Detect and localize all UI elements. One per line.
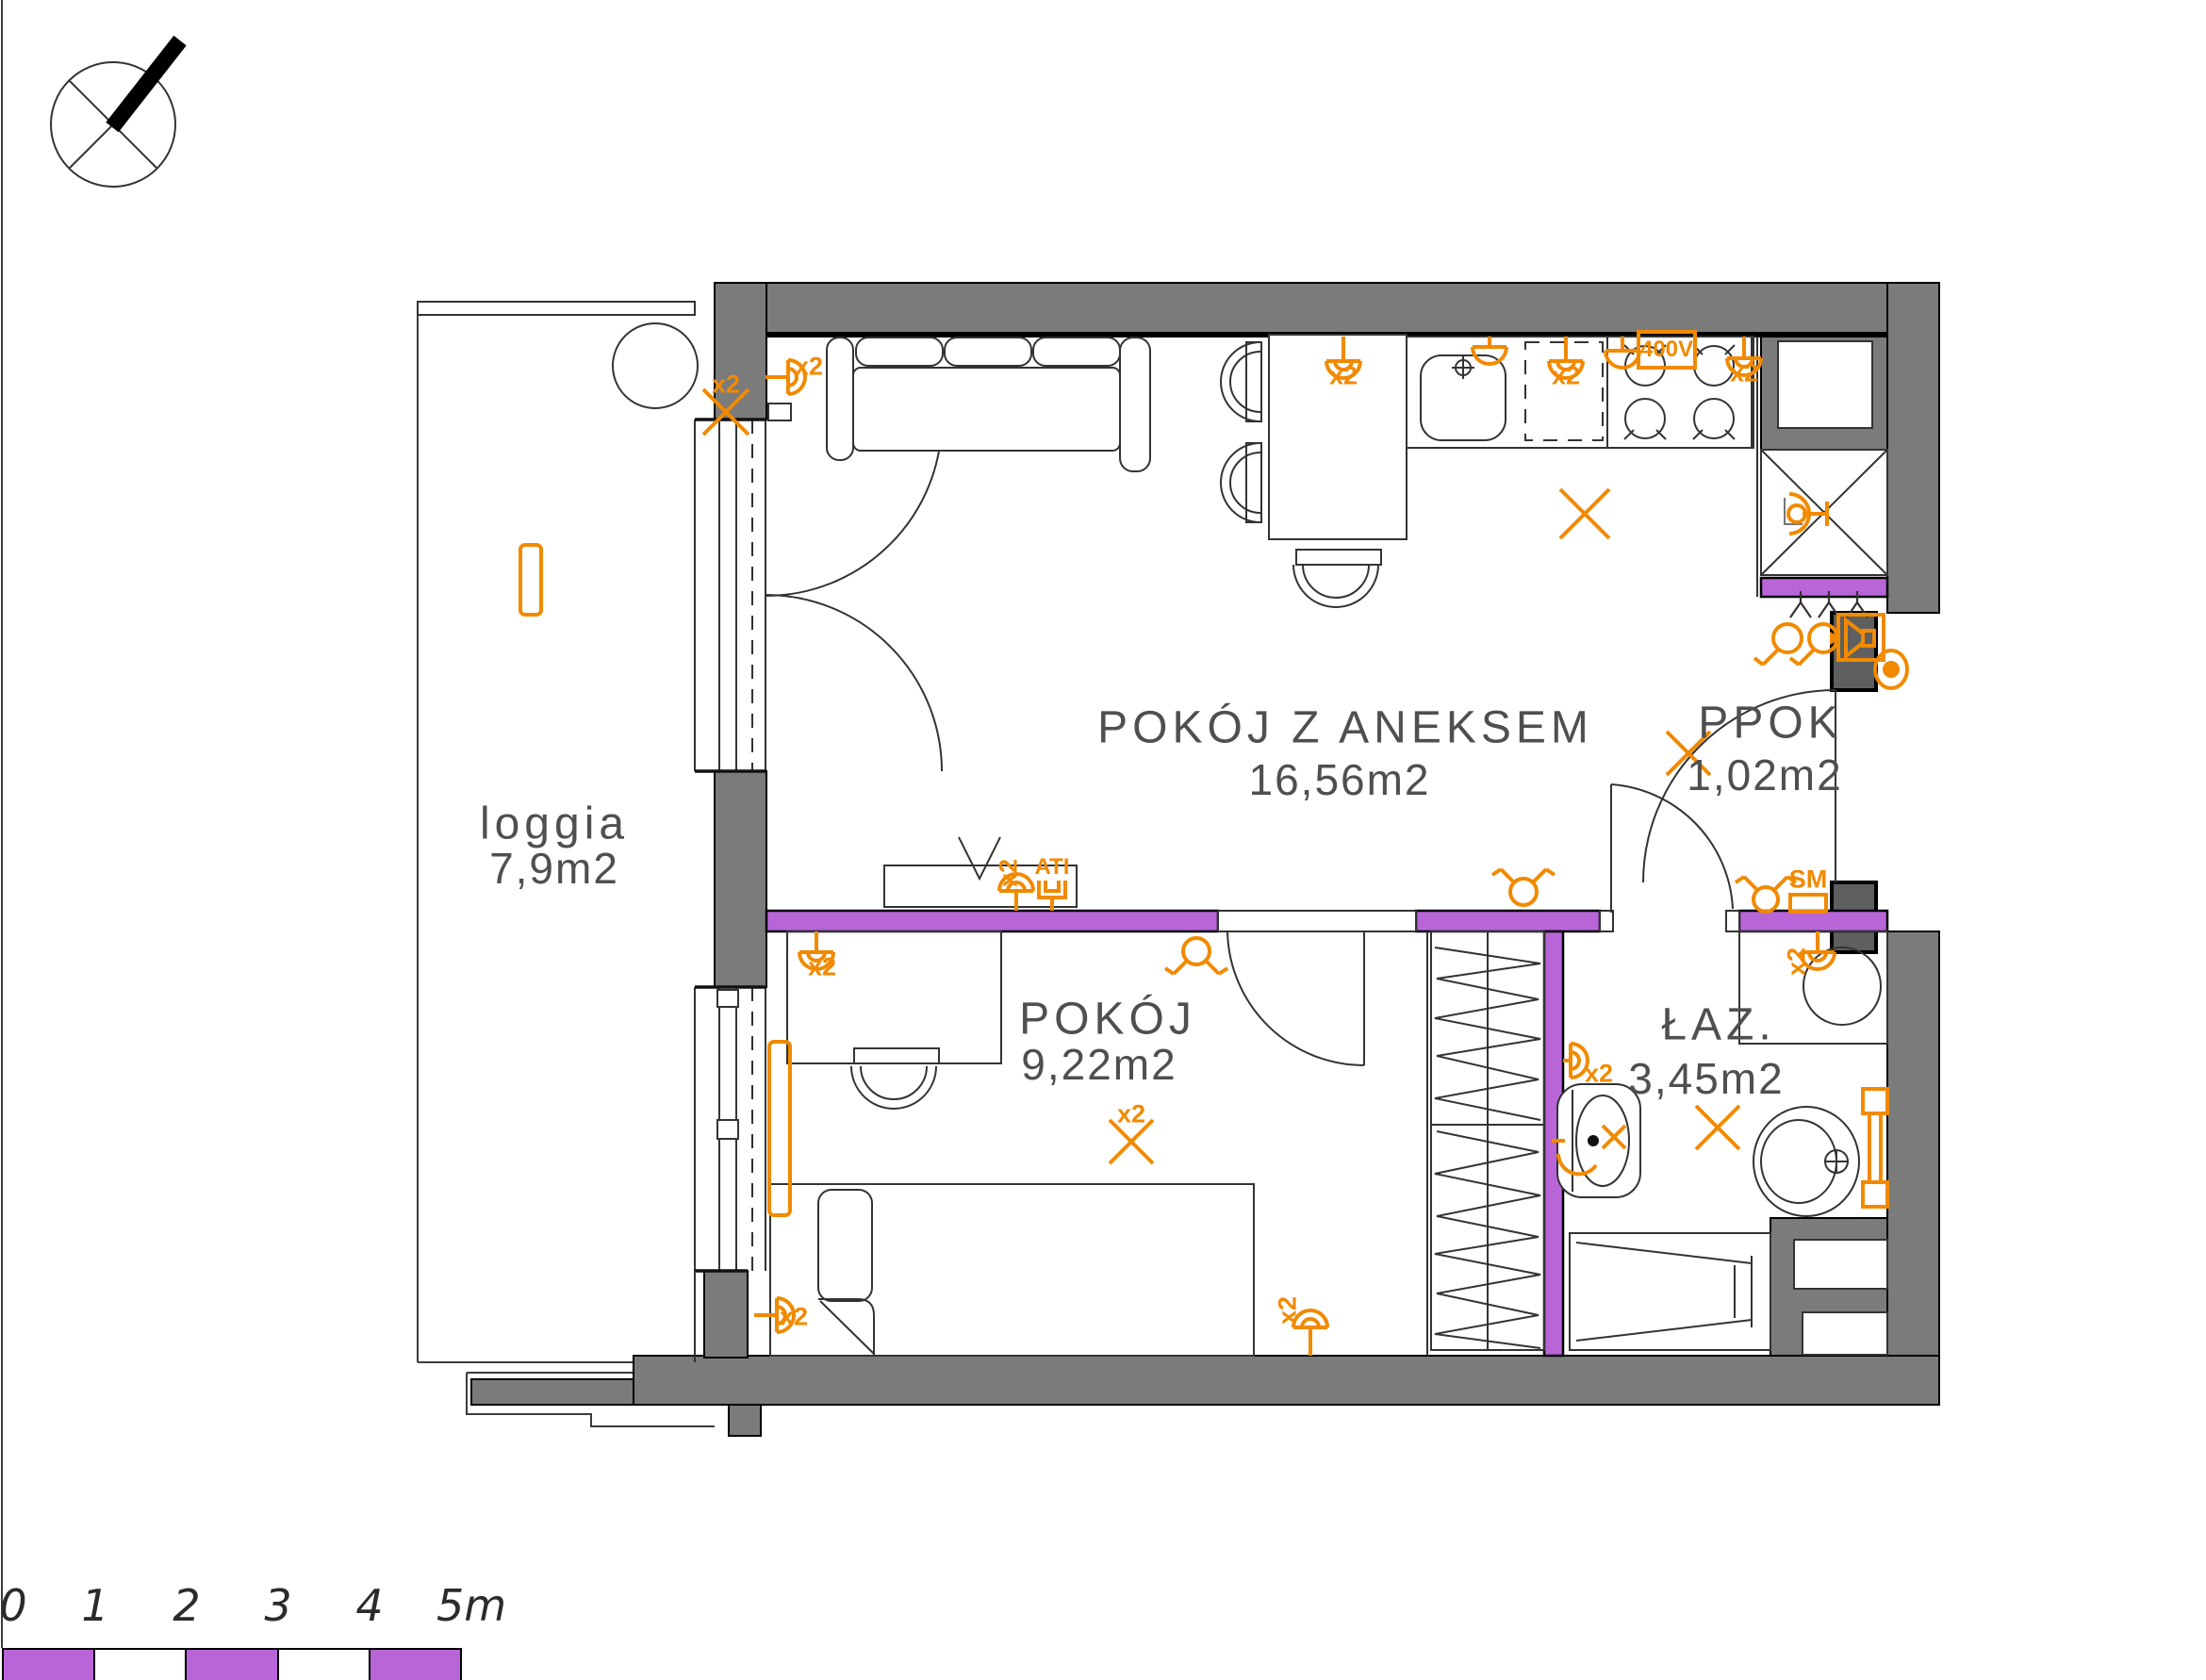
balcony-door-swing (766, 420, 942, 771)
power-400v-label: 400V (1640, 337, 1693, 363)
switch (768, 404, 791, 420)
pokoj-name: POKÓJ (1019, 994, 1196, 1046)
plan-drawing (0, 0, 2206, 1680)
kitchen-counter (1407, 337, 1753, 448)
wall-bottom-left (471, 1379, 634, 1405)
x2-label: x2 (1274, 1296, 1303, 1325)
x2-label: x2 (1552, 362, 1580, 391)
pillar-bottom-left (704, 1271, 748, 1358)
desk-chair (851, 1048, 939, 1109)
x2-label: x2 (780, 1303, 808, 1332)
pillar-mid-left (715, 771, 766, 987)
x2-label: x2 (1783, 947, 1812, 976)
chair (1221, 443, 1261, 522)
doorbell (1875, 651, 1907, 688)
niche-lower (1803, 1312, 1887, 1355)
scale-1: 1 (81, 1580, 108, 1631)
x2-label: x2 (1329, 362, 1358, 391)
ppok-name: PPOK (1698, 698, 1842, 749)
sm-label: SM (1789, 865, 1828, 895)
x2-label: x2 (1585, 1060, 1613, 1089)
furniture-living (613, 323, 1753, 907)
x2-label: x2 (1730, 359, 1758, 388)
sofa (827, 338, 1150, 471)
x2-label: x2 (795, 353, 823, 382)
chair (1293, 550, 1381, 607)
lamp-hall (1492, 869, 1555, 905)
scale-bar-segment (279, 1650, 370, 1680)
radiator-loggia (520, 545, 541, 615)
shaft-opening (1778, 341, 1872, 428)
socket-kitchen-4 (1605, 337, 1639, 368)
toilet (1753, 1107, 1859, 1216)
towel-radiator (1863, 1089, 1887, 1207)
partitions (1427, 337, 1757, 1356)
laz-name: ŁAZ. (1661, 999, 1775, 1051)
north-arrow-icon (51, 41, 180, 187)
bed (770, 1184, 1254, 1356)
wall-right-upper (1887, 283, 1939, 613)
accent-wall-hall (1761, 578, 1887, 597)
chair (1221, 342, 1261, 421)
anex-area: 16,56m2 (1248, 754, 1430, 805)
bathtub (1570, 1233, 1770, 1350)
bath-door-jamb-left (1600, 911, 1613, 931)
x2-label: x2 (995, 859, 1024, 887)
lamp-ppok (1736, 877, 1796, 912)
window-mullion (717, 1120, 738, 1139)
pokoj-door-swing (1227, 931, 1364, 1065)
scale-bar-segment (95, 1650, 187, 1680)
scale-4: 4 (355, 1580, 383, 1631)
ceiling-light-kitchen (1560, 489, 1609, 538)
wall-right-lower (1887, 931, 1939, 1405)
wardrobe (1431, 931, 1544, 1350)
sm-box (1790, 895, 1826, 912)
wall-top (716, 283, 1939, 337)
scale-3: 3 (264, 1580, 291, 1631)
floor-plan: loggia 7,9m2 POKÓJ Z ANEKSEM 16,56m2 PPO… (0, 0, 2206, 1680)
round-table (613, 323, 698, 408)
niche-upper (1794, 1240, 1887, 1289)
scale-2: 2 (173, 1580, 200, 1631)
anex-name: POKÓJ Z ANEKSEM (1097, 702, 1593, 754)
scale-0: 0 (0, 1580, 27, 1631)
bath-door-jamb-right (1726, 911, 1739, 931)
wall-bottom (634, 1356, 1939, 1405)
laz-area: 3,45m2 (1628, 1053, 1784, 1104)
ppok-area: 1,02m2 (1687, 749, 1842, 800)
bath-door-swing (1611, 784, 1733, 909)
wall-stub (729, 1405, 761, 1436)
accent-wall-bath-top (1739, 911, 1887, 931)
x2-label: x2 (712, 371, 740, 400)
loggia-area: 7,9m2 (489, 843, 619, 894)
antenna-label: ATI (1035, 854, 1070, 881)
scale-bar-segment (187, 1650, 278, 1680)
scale-bar-segment (370, 1650, 460, 1680)
x2-label: x2 (1117, 1100, 1145, 1129)
pokoj-area: 9,22m2 (1021, 1039, 1177, 1090)
lamp-pokoj-wall (1165, 938, 1227, 974)
scale-bar (2, 1648, 462, 1680)
window-mullion (717, 990, 738, 1007)
accent-wall-t-top (1416, 911, 1600, 931)
pokoj-door-lintel (1218, 911, 1416, 931)
ceiling-light-bath (1696, 1106, 1739, 1149)
balcony-door-frame (695, 420, 766, 771)
scale-5m: 5m (436, 1580, 506, 1631)
accent-wall-living-pokoj (766, 911, 1218, 931)
scale-bar-segment (4, 1650, 95, 1680)
x2-label: x2 (808, 953, 836, 982)
